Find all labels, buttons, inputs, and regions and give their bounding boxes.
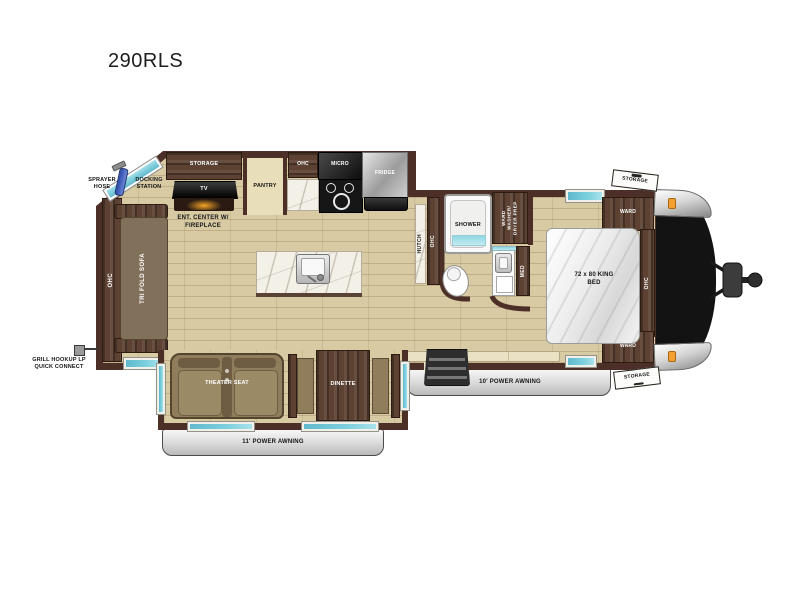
wd-ward-label: WARD WASHER/ DRYER PREP (492, 192, 528, 244)
ward-top-label: WARD (606, 209, 650, 215)
grill-connector-icon (74, 345, 85, 356)
ent-center-label: ENT. CENTER W/ FIREPLACE (170, 215, 236, 230)
island-edge (256, 293, 362, 297)
grill-connector-line (84, 348, 98, 350)
hutch-label: HUTCH (415, 204, 426, 284)
burner-icon (333, 193, 350, 210)
slide-window-bottom-right (302, 422, 378, 431)
marker-light-icon (668, 351, 676, 362)
awning-11ft-label: 11' POWER AWNING (212, 439, 334, 447)
bed-ohc-label: OHC (640, 229, 655, 337)
front-cap-chrome-bottom (654, 342, 713, 371)
sprayer-hose-label: SPRAYER HOSE (86, 177, 118, 191)
front-cap-chrome-top (654, 189, 713, 218)
faucet-handle-icon (307, 275, 316, 282)
slide-window-left (157, 364, 165, 414)
kitchen-ohc-label: OHC (288, 161, 318, 167)
theater-footrest (178, 358, 220, 368)
slide-window-right (401, 362, 409, 410)
step-tread (428, 367, 466, 370)
entry-steps-icon (424, 349, 470, 386)
theater-cushion (178, 370, 222, 416)
dinette-bench-seat (297, 358, 314, 414)
fridge-drawer (364, 197, 408, 211)
step-tread (427, 376, 467, 379)
med-cabinet-label: MED (516, 246, 530, 296)
microwave-label: MICRO (320, 161, 360, 167)
floorplan: 290RLS 11' POWER AWNING 10' POWER AWNING… (0, 0, 800, 600)
kitchen-counter (287, 179, 319, 211)
fireplace-glow-icon (186, 199, 222, 210)
theater-footrest (234, 358, 276, 368)
island-sink-icon (296, 254, 330, 284)
tv-label: TV (186, 186, 222, 193)
dinette-label: DINETTE (318, 381, 368, 388)
burner-icon (344, 183, 354, 193)
storage-handle-icon (634, 382, 644, 386)
cupholder-icon (225, 369, 229, 373)
king-bed-label: 72 x 80 KING BED (572, 272, 616, 287)
fridge-label: FRIDGE (364, 170, 406, 176)
burner-icon (326, 183, 336, 193)
slide-window-bottom-left (188, 422, 254, 431)
docking-station-label: DOCKING STATION (131, 177, 167, 191)
entry-ledge (402, 351, 560, 362)
dinette-bench-back (391, 354, 400, 418)
shower-water (452, 235, 486, 246)
step-tread (429, 358, 465, 361)
faucet-icon (317, 274, 324, 281)
dinette-bench-seat (372, 358, 389, 414)
theater-console (222, 357, 232, 417)
bedroom-window-bottom (566, 356, 596, 367)
tri-fold-sofa-label: TRI FOLD SOFA (120, 217, 168, 340)
shower-label: SHOWER (446, 222, 490, 229)
ent-storage-label: STORAGE (174, 161, 234, 168)
hitch-icon (710, 252, 764, 308)
vanity-cabinet-door (496, 276, 513, 293)
page-title: 290RLS (108, 50, 183, 73)
dinette-bench-back (288, 354, 297, 418)
pantry-label: PANTRY (245, 183, 285, 190)
theater-seat-label: THEATER SEAT (178, 380, 276, 387)
vanity-basin (499, 257, 508, 269)
bedroom-window-top (566, 190, 604, 202)
bath-bedroom-wall (528, 197, 533, 245)
grill-hookup-label: GRILL HOOKUP LP QUICK CONNECT (28, 357, 90, 371)
theater-cushion (234, 370, 278, 416)
vanity-sink-icon (495, 253, 512, 273)
marker-light-icon (668, 198, 676, 209)
